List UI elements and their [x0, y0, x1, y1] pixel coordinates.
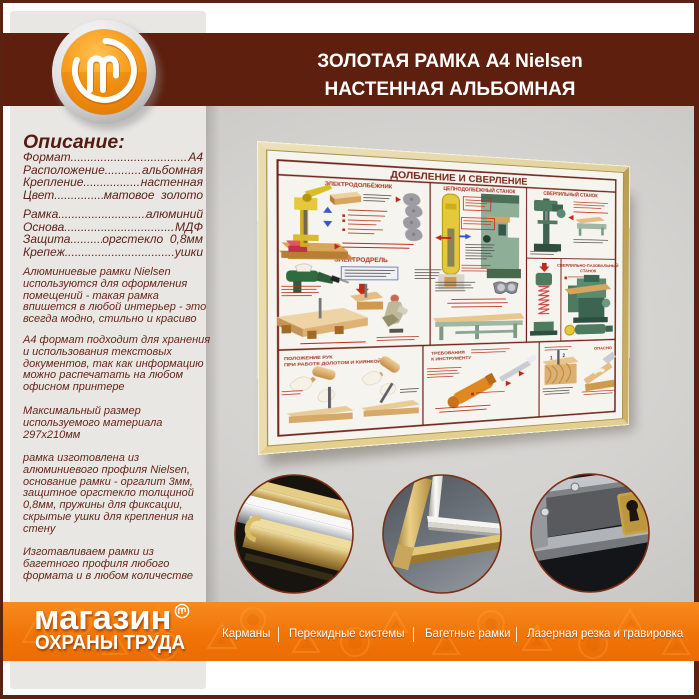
svg-text:2: 2: [563, 353, 566, 358]
svg-text:СТАНОК: СТАНОК: [580, 269, 597, 273]
svg-text:ОПАСНО: ОПАСНО: [594, 346, 612, 351]
